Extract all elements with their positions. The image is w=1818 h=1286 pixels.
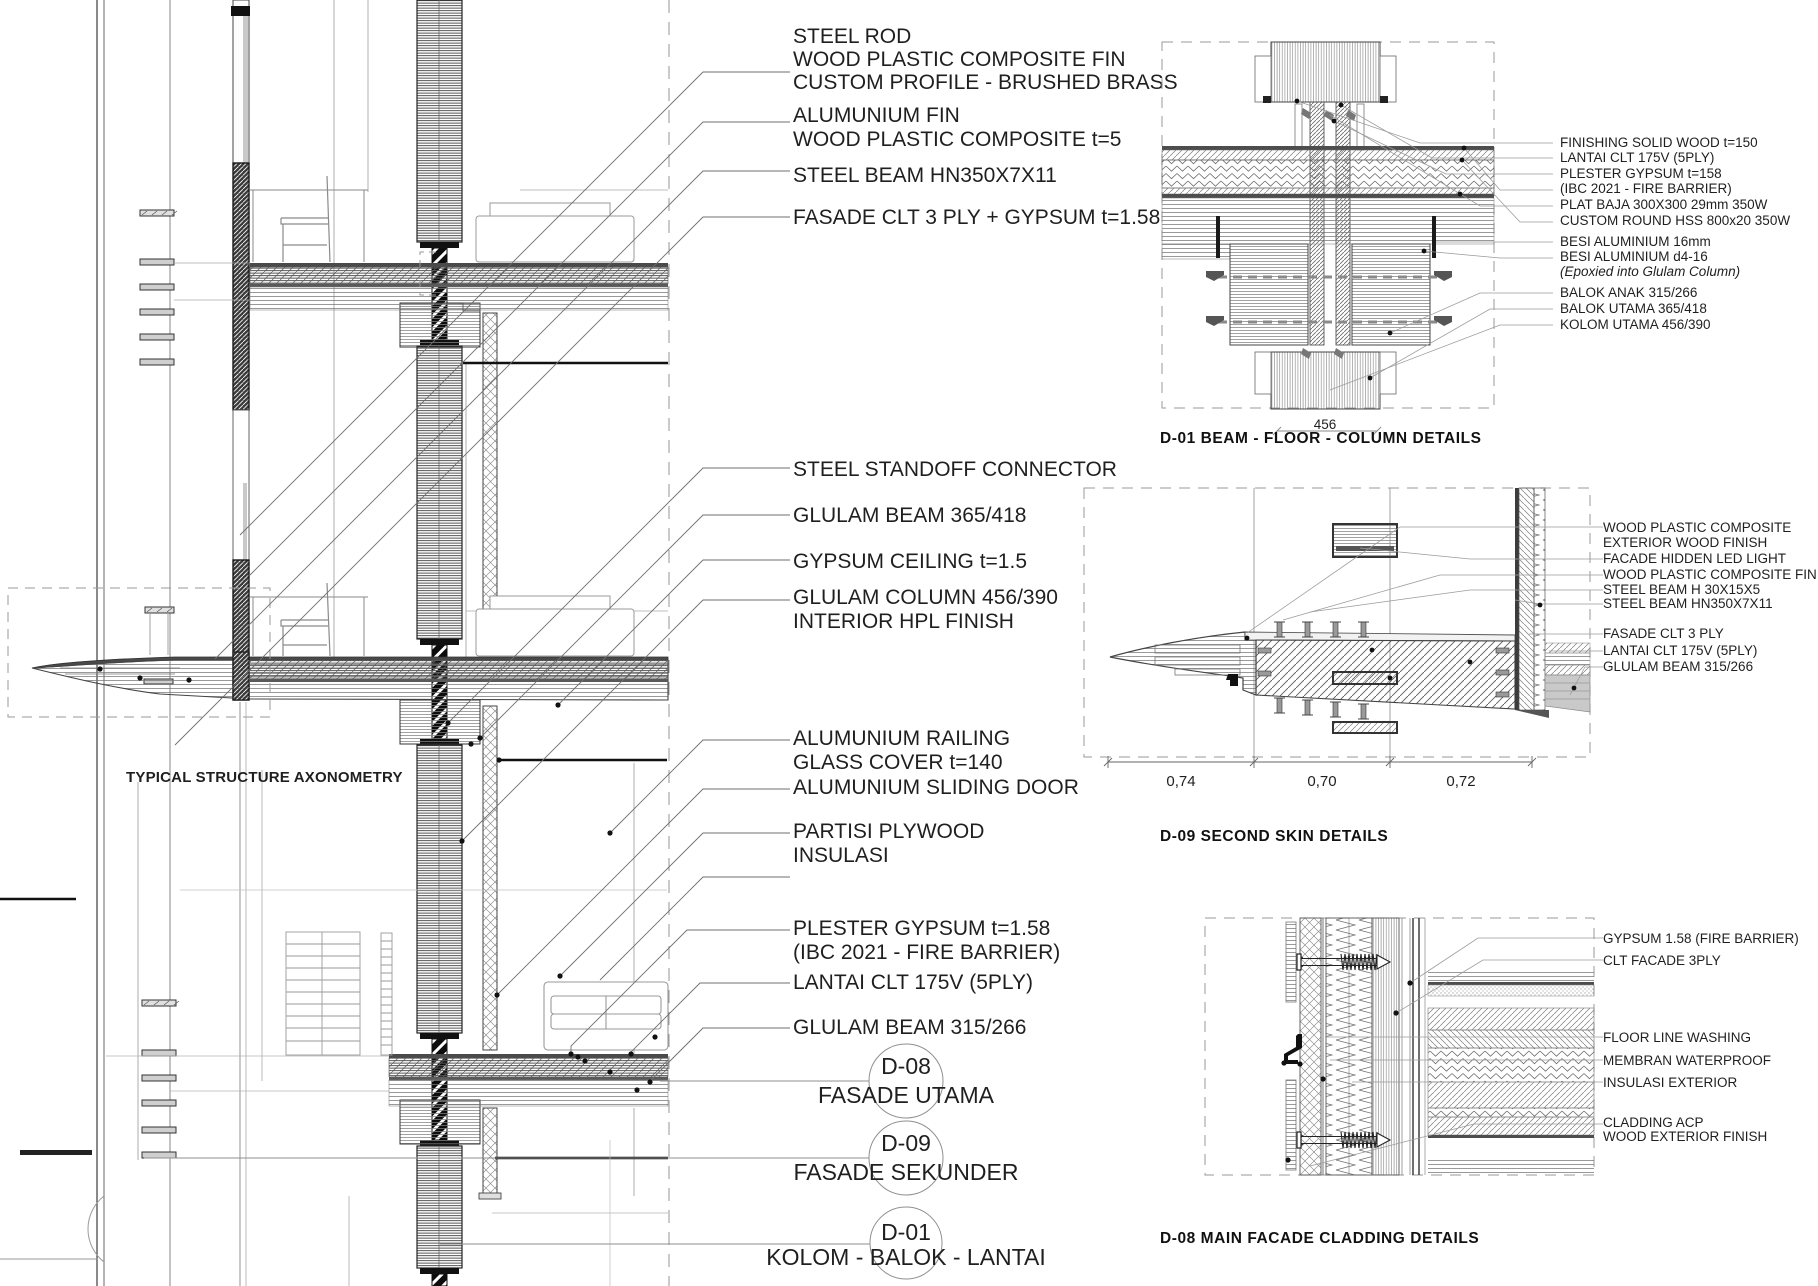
svg-text:CUSTOM PROFILE - BRUSHED BRASS: CUSTOM PROFILE - BRUSHED BRASS xyxy=(793,71,1178,94)
svg-text:PLESTER GYPSUM t=158: PLESTER GYPSUM t=158 xyxy=(1560,166,1722,181)
svg-text:FASADE SEKUNDER: FASADE SEKUNDER xyxy=(794,1159,1019,1185)
svg-text:GLULAM COLUMN 456/390: GLULAM COLUMN 456/390 xyxy=(793,586,1058,609)
svg-text:WOOD PLASTIC COMPOSITE FIN: WOOD PLASTIC COMPOSITE FIN xyxy=(793,48,1126,71)
svg-text:LANTAI CLT 175V (5PLY): LANTAI CLT 175V (5PLY) xyxy=(1603,643,1757,658)
svg-text:WOOD EXTERIOR FINISH: WOOD EXTERIOR FINISH xyxy=(1603,1129,1767,1144)
svg-text:CUSTOM ROUND HSS 800x20 350W: CUSTOM ROUND HSS 800x20 350W xyxy=(1560,213,1790,228)
svg-text:0,74: 0,74 xyxy=(1166,773,1195,790)
svg-text:INSULASI: INSULASI xyxy=(793,844,889,867)
svg-text:TYPICAL STRUCTURE AXONOMETRY: TYPICAL STRUCTURE AXONOMETRY xyxy=(126,769,403,786)
svg-text:INSULASI EXTERIOR: INSULASI EXTERIOR xyxy=(1603,1075,1738,1090)
svg-text:LANTAI CLT 175V (5PLY): LANTAI CLT 175V (5PLY) xyxy=(1560,150,1714,165)
svg-text:GYPSUM CEILING t=1.5: GYPSUM CEILING t=1.5 xyxy=(793,550,1027,573)
svg-text:STEEL ROD: STEEL ROD xyxy=(793,25,911,48)
svg-text:KOLOM - BALOK - LANTAI: KOLOM - BALOK - LANTAI xyxy=(766,1244,1045,1270)
svg-text:BESI ALUMINIUM d4-16: BESI ALUMINIUM d4-16 xyxy=(1560,249,1708,264)
svg-text:GLASS COVER t=140: GLASS COVER t=140 xyxy=(793,751,1003,774)
svg-text:KOLOM UTAMA 456/390: KOLOM UTAMA 456/390 xyxy=(1560,317,1711,332)
svg-text:PLAT BAJA 300X300 29mm 350W: PLAT BAJA 300X300 29mm 350W xyxy=(1560,197,1768,212)
svg-text:FASADE UTAMA: FASADE UTAMA xyxy=(818,1082,995,1108)
svg-text:FLOOR LINE WASHING: FLOOR LINE WASHING xyxy=(1603,1030,1751,1045)
svg-text:(Epoxied into Glulam Column): (Epoxied into Glulam Column) xyxy=(1560,264,1740,279)
svg-text:PARTISI PLYWOOD: PARTISI PLYWOOD xyxy=(793,820,984,843)
svg-text:D-01: D-01 xyxy=(881,1219,931,1245)
svg-text:FINISHING SOLID WOOD t=150: FINISHING SOLID WOOD t=150 xyxy=(1560,135,1758,150)
svg-text:INTERIOR HPL FINISH: INTERIOR HPL FINISH xyxy=(793,610,1014,633)
svg-text:EXTERIOR WOOD FINISH: EXTERIOR WOOD FINISH xyxy=(1603,535,1767,550)
svg-text:STEEL BEAM HN350X7X11: STEEL BEAM HN350X7X11 xyxy=(793,164,1057,187)
svg-text:LANTAI CLT 175V (5PLY): LANTAI CLT 175V (5PLY) xyxy=(793,971,1033,994)
svg-text:0,70: 0,70 xyxy=(1307,773,1336,790)
svg-text:FASADE CLT 3 PLY: FASADE CLT 3 PLY xyxy=(1603,626,1724,641)
svg-text:PLESTER GYPSUM t=1.58: PLESTER GYPSUM t=1.58 xyxy=(793,917,1050,940)
svg-text:(IBC 2021 - FIRE BARRIER): (IBC 2021 - FIRE BARRIER) xyxy=(793,941,1060,964)
svg-text:0,72: 0,72 xyxy=(1446,773,1475,790)
svg-text:D-08 MAIN FACADE CLADDING DETA: D-08 MAIN FACADE CLADDING DETAILS xyxy=(1160,1230,1479,1247)
svg-text:GLULAM BEAM 365/418: GLULAM BEAM 365/418 xyxy=(793,504,1026,527)
svg-text:ALUMUNIUM RAILING: ALUMUNIUM RAILING xyxy=(793,727,1010,750)
svg-text:WOOD PLASTIC COMPOSITE t=5: WOOD PLASTIC COMPOSITE t=5 xyxy=(793,128,1121,151)
svg-text:FACADE HIDDEN LED LIGHT: FACADE HIDDEN LED LIGHT xyxy=(1603,551,1786,566)
svg-text:MEMBRAN WATERPROOF: MEMBRAN WATERPROOF xyxy=(1603,1053,1771,1068)
svg-text:CLADDING ACP: CLADDING ACP xyxy=(1603,1115,1704,1130)
svg-text:BALOK ANAK 315/266: BALOK ANAK 315/266 xyxy=(1560,285,1697,300)
svg-text:WOOD PLASTIC COMPOSITE FIN: WOOD PLASTIC COMPOSITE FIN xyxy=(1603,567,1817,582)
svg-text:STEEL STANDOFF CONNECTOR: STEEL STANDOFF CONNECTOR xyxy=(793,458,1117,481)
svg-text:GLULAM BEAM 315/266: GLULAM BEAM 315/266 xyxy=(793,1016,1026,1039)
svg-text:STEEL BEAM H 30X15X5: STEEL BEAM H 30X15X5 xyxy=(1603,582,1760,597)
svg-text:STEEL BEAM HN350X7X11: STEEL BEAM HN350X7X11 xyxy=(1603,596,1773,611)
svg-text:D-08: D-08 xyxy=(881,1053,931,1079)
svg-text:GYPSUM 1.58 (FIRE BARRIER): GYPSUM 1.58 (FIRE BARRIER) xyxy=(1603,931,1799,946)
svg-text:D-01 BEAM - FLOOR - COLUMN DET: D-01 BEAM - FLOOR - COLUMN DETAILS xyxy=(1160,430,1482,447)
svg-text:BALOK UTAMA 365/418: BALOK UTAMA 365/418 xyxy=(1560,301,1707,316)
svg-text:ALUMUNIUM SLIDING DOOR: ALUMUNIUM SLIDING DOOR xyxy=(793,776,1079,799)
svg-text:BESI ALUMINIUM 16mm: BESI ALUMINIUM 16mm xyxy=(1560,234,1711,249)
svg-text:D-09: D-09 xyxy=(881,1130,931,1156)
svg-text:ALUMUNIUM FIN: ALUMUNIUM FIN xyxy=(793,104,960,127)
svg-text:GLULAM BEAM 315/266: GLULAM BEAM 315/266 xyxy=(1603,659,1753,674)
svg-text:FASADE CLT 3 PLY + GYPSUM t=1.: FASADE CLT 3 PLY + GYPSUM t=1.58 xyxy=(793,206,1160,229)
svg-text:(IBC 2021 - FIRE BARRIER): (IBC 2021 - FIRE BARRIER) xyxy=(1560,181,1732,196)
svg-text:WOOD PLASTIC COMPOSITE: WOOD PLASTIC COMPOSITE xyxy=(1603,520,1791,535)
svg-text:CLT FACADE 3PLY: CLT FACADE 3PLY xyxy=(1603,953,1721,968)
svg-text:D-09 SECOND SKIN DETAILS: D-09 SECOND SKIN DETAILS xyxy=(1160,828,1388,845)
